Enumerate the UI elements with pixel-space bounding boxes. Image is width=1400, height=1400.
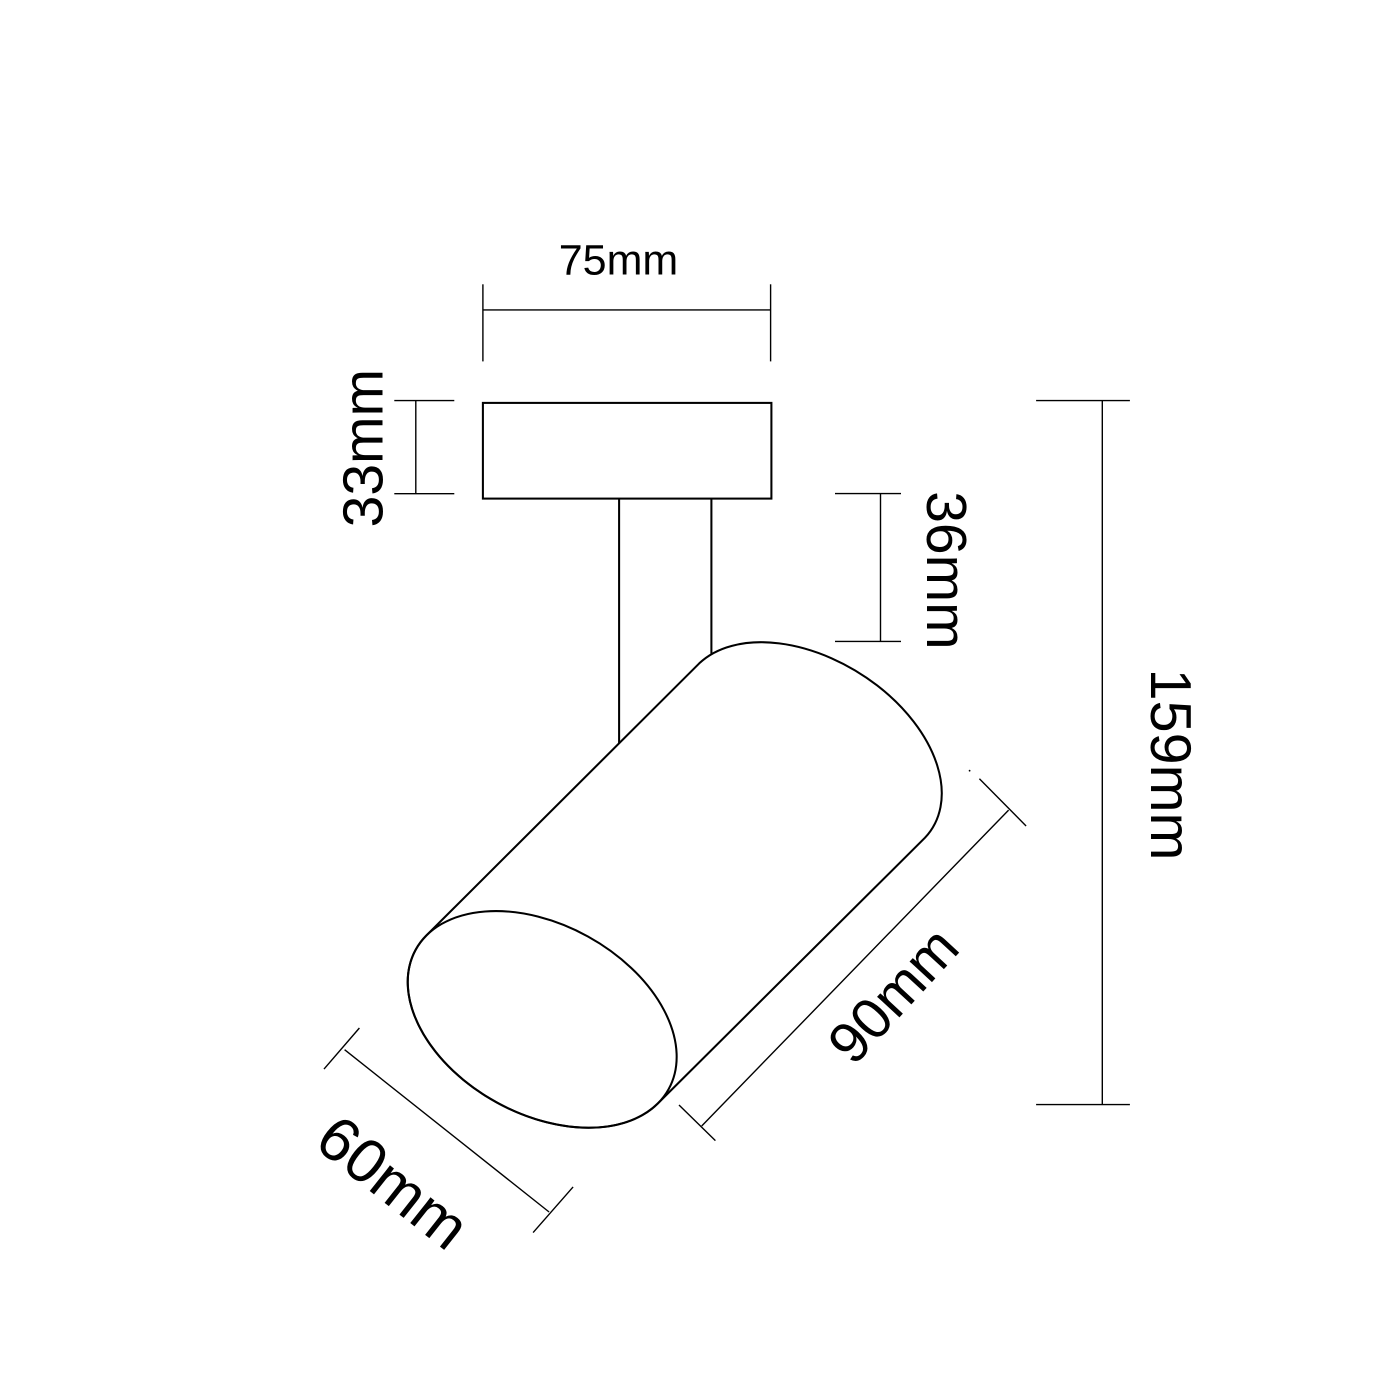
svg-text:159mm: 159mm <box>1138 669 1202 861</box>
svg-text:75mm: 75mm <box>559 236 678 284</box>
svg-text:36mm: 36mm <box>914 491 978 649</box>
svg-text:33mm: 33mm <box>331 369 395 527</box>
